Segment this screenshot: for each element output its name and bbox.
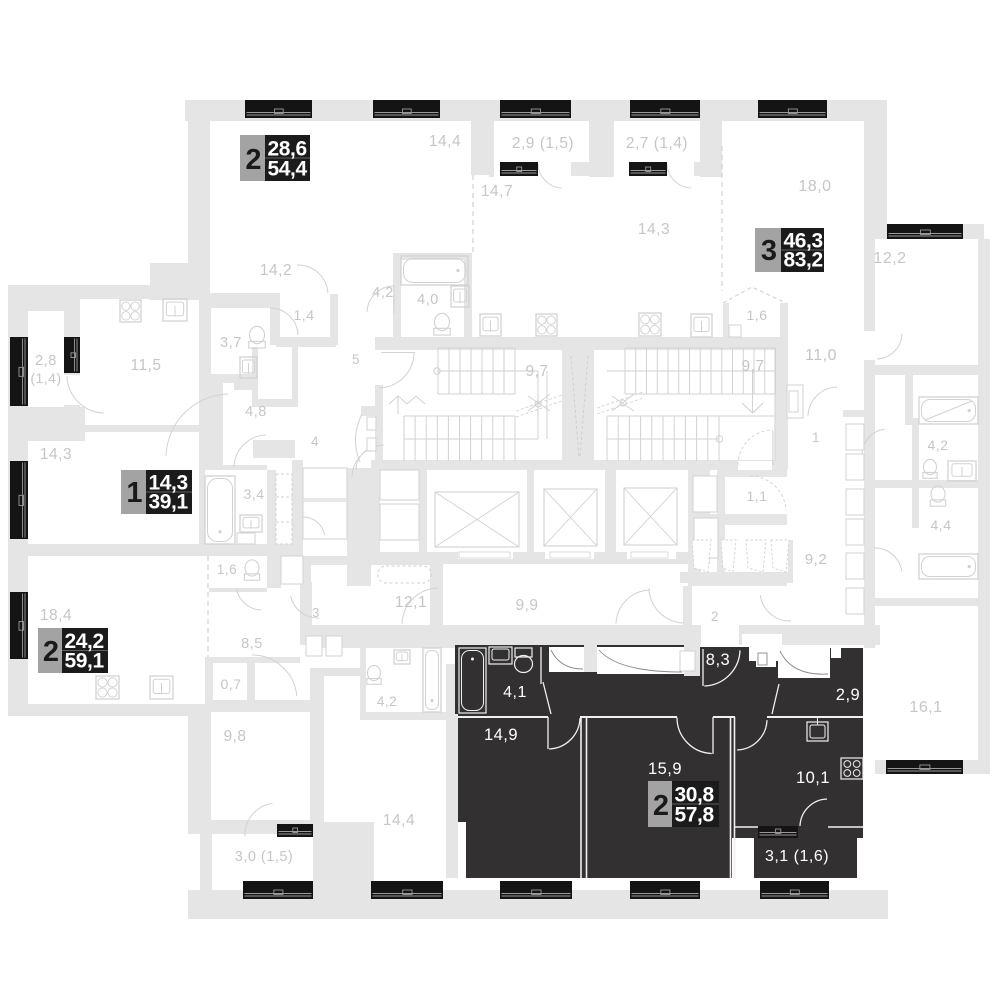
svg-text:39,1: 39,1 [149,491,189,514]
svg-text:4,4: 4,4 [931,517,952,533]
svg-text:14,3: 14,3 [638,221,670,238]
svg-text:1,4: 1,4 [294,307,315,323]
svg-text:1,1: 1,1 [747,488,768,504]
svg-text:9,2: 9,2 [805,551,827,568]
svg-text:4,2: 4,2 [372,285,394,301]
svg-text:18,4: 18,4 [40,607,72,624]
svg-text:11,5: 11,5 [130,357,161,374]
svg-text:3,4: 3,4 [244,486,265,502]
svg-text:10,1: 10,1 [796,769,830,787]
svg-text:12,1: 12,1 [395,594,427,611]
svg-text:2,9: 2,9 [836,686,860,704]
svg-text:1,6: 1,6 [217,562,237,577]
svg-text:2: 2 [43,636,59,668]
svg-text:4,2: 4,2 [928,437,949,453]
svg-text:4: 4 [311,434,319,449]
svg-text:9,7: 9,7 [525,363,548,380]
svg-text:3,7: 3,7 [220,335,242,351]
svg-text:4,2: 4,2 [377,694,397,709]
svg-text:3,1 (1,6): 3,1 (1,6) [765,848,829,865]
svg-text:15,9: 15,9 [648,760,682,778]
svg-text:14,4: 14,4 [383,812,415,829]
svg-text:16,1: 16,1 [909,699,942,716]
svg-text:4,8: 4,8 [245,404,267,420]
svg-text:2,8: 2,8 [35,353,57,369]
svg-text:14,2: 14,2 [260,262,292,279]
svg-text:0,7: 0,7 [221,676,242,692]
svg-text:5: 5 [352,352,360,367]
svg-text:(1,4): (1,4) [30,370,61,386]
svg-text:14,4: 14,4 [429,133,461,150]
svg-text:18,0: 18,0 [798,178,831,195]
svg-text:8,5: 8,5 [241,636,263,652]
svg-text:14,7: 14,7 [481,183,513,200]
svg-text:14,9: 14,9 [484,726,518,744]
svg-text:9,9: 9,9 [515,597,538,614]
svg-text:2: 2 [711,609,719,624]
svg-text:2,9 (1,5): 2,9 (1,5) [512,135,574,152]
svg-text:83,2: 83,2 [784,249,823,272]
svg-text:8,3: 8,3 [706,651,730,669]
svg-text:12,2: 12,2 [873,250,906,267]
svg-text:4,1: 4,1 [503,684,527,701]
svg-text:4,0: 4,0 [417,292,439,308]
svg-text:57,8: 57,8 [675,804,715,827]
svg-text:2,7 (1,4): 2,7 (1,4) [626,135,688,152]
svg-text:3: 3 [312,605,320,620]
svg-text:2: 2 [245,144,261,176]
svg-text:3,0 (1,5): 3,0 (1,5) [235,849,294,865]
svg-text:54,4: 54,4 [268,158,308,181]
svg-text:1: 1 [812,430,820,445]
svg-text:2: 2 [653,790,669,822]
svg-text:9,8: 9,8 [223,728,246,745]
svg-text:9,7: 9,7 [741,358,764,375]
svg-text:3: 3 [761,235,777,267]
svg-text:1: 1 [126,477,142,509]
svg-text:11,0: 11,0 [805,347,837,364]
svg-text:59,1: 59,1 [65,650,105,673]
svg-text:14,3: 14,3 [40,446,72,463]
svg-text:1,6: 1,6 [747,307,768,323]
